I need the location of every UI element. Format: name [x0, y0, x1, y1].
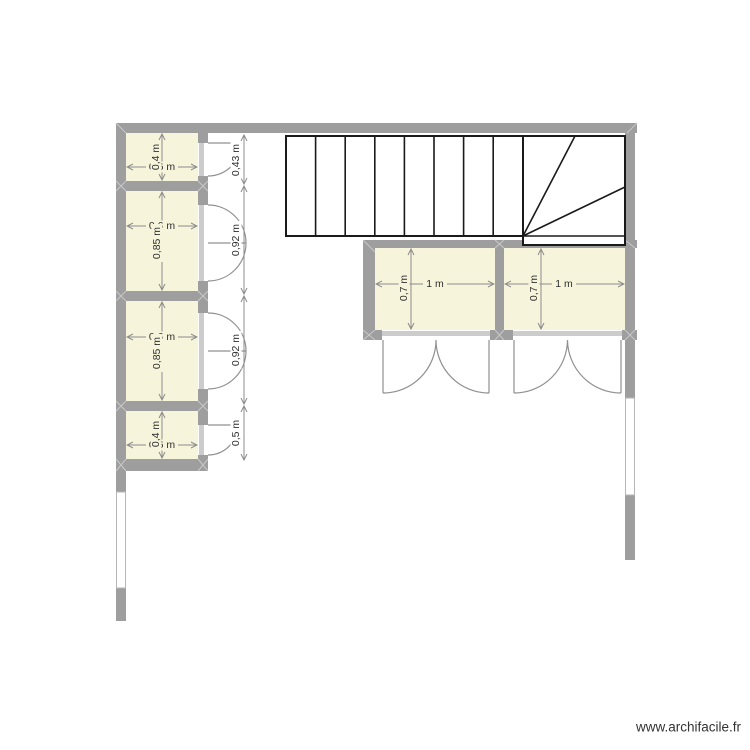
wall-divider-1[interactable] [116, 181, 208, 191]
double-door-room-5[interactable] [383, 340, 489, 393]
wall-top[interactable] [116, 123, 637, 133]
door-sill-2 [199, 205, 204, 281]
door-sill-3 [199, 313, 204, 389]
opening-3-label: 0,92 m [230, 334, 242, 366]
window-right-wall[interactable] [626, 398, 635, 495]
opening-4-label: 0,5 m [230, 420, 242, 447]
double-door-room-6[interactable] [514, 340, 621, 393]
door-sill-1 [199, 143, 204, 176]
opening-2-label: 0,92 m [230, 224, 242, 256]
window-left-wall[interactable] [117, 492, 126, 588]
wall-bottom-rooms-left[interactable] [363, 240, 375, 340]
door-sill-4 [199, 425, 204, 455]
room-6-width-label: 1 m [555, 278, 573, 290]
room-5-width-label: 1 m [426, 278, 444, 290]
opening-1-label: 0,43 m [230, 144, 242, 176]
wall-bottom-rooms-middle[interactable] [495, 240, 504, 340]
wall-divider-2[interactable] [116, 291, 208, 301]
floor-plan-canvas: 0,6 m 0,4 m 0,6 m 0,85 m 0,6 m 0,85 m 0,… [0, 0, 750, 750]
room-5-height-label: 0,7 m [398, 275, 410, 302]
door-sill-5 [382, 331, 490, 336]
watermark: www.archifacile.fr [635, 720, 742, 735]
floor-plan: 0,6 m 0,4 m 0,6 m 0,85 m 0,6 m 0,85 m 0,… [0, 0, 750, 750]
room-4-height-label: 0,4 m [150, 421, 162, 448]
wall-divider-3[interactable] [116, 401, 208, 411]
door-sill-6 [513, 331, 622, 336]
room-2-height-label: 0,85 m [151, 227, 163, 259]
staircase[interactable] [286, 136, 625, 245]
room-3-height-label: 0,85 m [151, 337, 163, 369]
room-1-height-label: 0,4 m [150, 144, 162, 171]
wall-room-column-bottom[interactable] [116, 459, 208, 471]
room-6-height-label: 0,7 m [528, 275, 540, 302]
